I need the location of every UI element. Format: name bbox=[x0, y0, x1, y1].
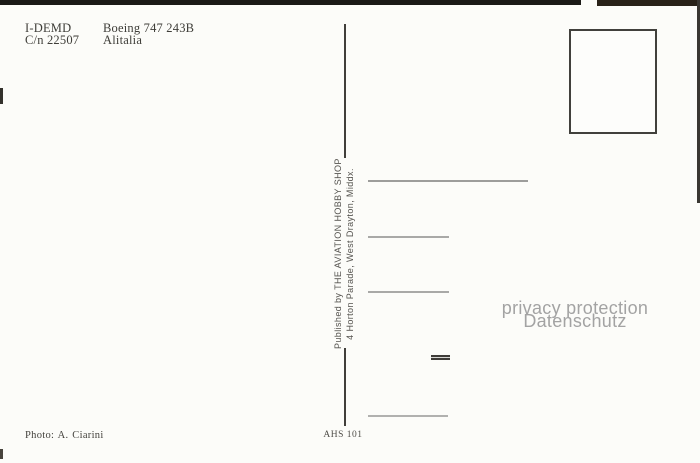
photo-credit: Photo: A. Ciarini bbox=[25, 430, 104, 441]
caption-column-left: I-DEMD C/n 22507 bbox=[25, 23, 103, 46]
scan-edge-top-right bbox=[597, 0, 700, 6]
address-line-3 bbox=[368, 291, 449, 293]
stamp-box bbox=[569, 29, 657, 134]
publisher-imprint: Published by THE AVIATION HOBBY SHOP 4 H… bbox=[332, 159, 356, 349]
postcard-back: I-DEMD C/n 22507 Boeing 747 243B Alitali… bbox=[0, 0, 700, 463]
aircraft-caption-block: I-DEMD C/n 22507 Boeing 747 243B Alitali… bbox=[25, 23, 194, 46]
scan-edge-top-left bbox=[0, 0, 581, 5]
scan-edge-left-mark-lower bbox=[0, 449, 3, 459]
divider-line-upper bbox=[344, 24, 346, 158]
divider-line-lower bbox=[344, 348, 346, 426]
catalog-number: AHS 101 bbox=[303, 430, 383, 440]
address-line-2 bbox=[368, 236, 449, 238]
privacy-watermark: privacy protection Datenschutz bbox=[479, 302, 671, 328]
publisher-address: 4 Horton Parade, West Drayton, Middx. bbox=[344, 159, 356, 349]
caption-column-right: Boeing 747 243B Alitalia bbox=[103, 23, 194, 46]
airline-name: Alitalia bbox=[103, 35, 194, 47]
scan-edge-left-mark-upper bbox=[0, 88, 3, 104]
publisher-name: Published by THE AVIATION HOBBY SHOP bbox=[332, 159, 344, 349]
address-line-1 bbox=[368, 180, 528, 182]
franking-mark bbox=[431, 355, 450, 360]
address-line-4 bbox=[368, 415, 448, 417]
aircraft-construction-number: C/n 22507 bbox=[25, 35, 103, 47]
